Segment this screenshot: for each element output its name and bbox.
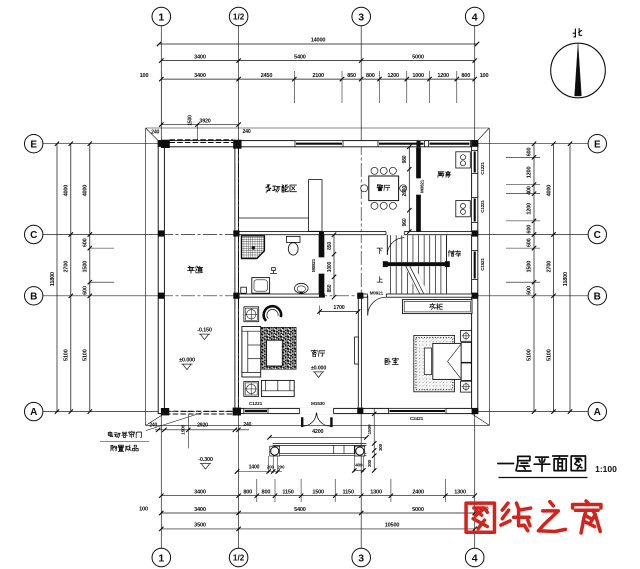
svg-text:2680: 2680 (402, 186, 408, 197)
svg-text:M0821: M0821 (311, 258, 316, 272)
svg-text:4000: 4000 (64, 185, 70, 197)
svg-text:850: 850 (327, 242, 333, 250)
svg-text:3500: 3500 (194, 523, 206, 529)
svg-text:4000: 4000 (546, 185, 552, 197)
svg-text:1500: 1500 (312, 490, 324, 496)
svg-text:3: 3 (358, 552, 364, 564)
svg-text:4: 4 (472, 552, 478, 564)
svg-text:800: 800 (366, 73, 375, 79)
svg-text:M1530: M1530 (311, 401, 325, 407)
svg-text:14000: 14000 (311, 38, 326, 44)
svg-text:200: 200 (367, 459, 372, 467)
svg-text:3400: 3400 (194, 73, 206, 79)
svg-text:1:100: 1:100 (595, 464, 617, 474)
svg-text:600: 600 (83, 238, 89, 247)
svg-text:1150: 1150 (282, 490, 293, 496)
svg-text:1500: 1500 (188, 115, 194, 126)
svg-text:4200: 4200 (312, 429, 323, 435)
svg-text:5400: 5400 (294, 507, 306, 513)
svg-text:240: 240 (242, 129, 250, 135)
svg-text:1000: 1000 (412, 73, 424, 79)
svg-text:1: 1 (158, 11, 164, 23)
svg-text:5000: 5000 (412, 54, 424, 60)
svg-text:C1221: C1221 (480, 200, 485, 213)
svg-text:240: 240 (243, 422, 251, 428)
svg-text:1400: 1400 (249, 464, 260, 470)
svg-text:1200: 1200 (527, 203, 533, 215)
svg-text:5100: 5100 (64, 349, 70, 361)
svg-text:5000: 5000 (412, 507, 424, 513)
svg-text:2920: 2920 (197, 423, 208, 429)
svg-text:600: 600 (527, 286, 533, 295)
svg-text:5100: 5100 (527, 349, 533, 361)
svg-text:C1221: C1221 (249, 401, 263, 407)
svg-text:2700: 2700 (64, 261, 70, 273)
svg-text:1150: 1150 (343, 490, 354, 496)
svg-text:1300: 1300 (370, 490, 382, 496)
svg-text:960: 960 (402, 218, 408, 226)
svg-text:1: 1 (158, 552, 164, 564)
svg-text:3400: 3400 (194, 507, 206, 513)
svg-text:-0.300: -0.300 (198, 457, 213, 463)
svg-text:5400: 5400 (294, 54, 306, 60)
svg-text:1200: 1200 (437, 73, 449, 79)
svg-text:1500: 1500 (367, 424, 373, 434)
svg-text:3400: 3400 (194, 54, 206, 60)
svg-text:A: A (594, 407, 601, 418)
svg-text:C: C (594, 230, 601, 241)
svg-text:B: B (30, 291, 37, 302)
svg-text:4: 4 (472, 11, 478, 23)
svg-text:980: 980 (402, 155, 408, 163)
svg-text:11800: 11800 (50, 272, 56, 286)
svg-text:2450: 2450 (261, 73, 273, 79)
svg-text:E: E (30, 139, 37, 150)
svg-text:200: 200 (277, 464, 285, 469)
svg-text:240: 240 (151, 130, 159, 136)
svg-text:600: 600 (527, 225, 533, 234)
svg-text:850: 850 (347, 73, 356, 79)
svg-text:1200: 1200 (527, 167, 533, 179)
svg-text:B: B (594, 291, 601, 302)
svg-text:2100: 2100 (312, 73, 324, 79)
svg-text:1700: 1700 (333, 305, 344, 311)
svg-text:M0921: M0921 (370, 291, 384, 296)
svg-text:11800: 11800 (563, 272, 569, 286)
svg-text:1000: 1000 (327, 261, 333, 272)
svg-text:C: C (30, 230, 37, 241)
svg-text:800: 800 (461, 73, 470, 79)
svg-text:1/2: 1/2 (233, 12, 245, 21)
svg-text:C1521: C1521 (480, 258, 485, 271)
svg-text:1300: 1300 (454, 490, 466, 496)
svg-text:100: 100 (140, 73, 149, 79)
svg-text:10500: 10500 (385, 523, 400, 529)
svg-text:400: 400 (355, 462, 363, 468)
svg-text:240: 240 (149, 423, 157, 429)
svg-text:300: 300 (378, 443, 383, 451)
svg-text:800: 800 (262, 490, 271, 496)
svg-text:1500: 1500 (181, 424, 187, 434)
svg-text:C1221: C1221 (480, 162, 485, 175)
svg-text:E: E (594, 139, 601, 150)
svg-text:1500: 1500 (527, 261, 533, 273)
svg-text:850: 850 (327, 284, 333, 292)
svg-text:2400: 2400 (412, 490, 424, 496)
svg-text:5100: 5100 (546, 349, 552, 361)
svg-text:800: 800 (243, 490, 252, 496)
svg-text:5100: 5100 (83, 349, 89, 361)
svg-text:1/2: 1/2 (233, 553, 245, 562)
svg-text:M0821: M0821 (419, 179, 424, 193)
svg-text:3400: 3400 (194, 490, 206, 496)
svg-text:1200: 1200 (387, 73, 399, 79)
svg-text:-0.150: -0.150 (197, 328, 212, 334)
svg-text:C2421: C2421 (410, 416, 424, 422)
svg-text:±0.000: ±0.000 (311, 365, 326, 371)
svg-text:600: 600 (83, 286, 89, 295)
svg-text:3920: 3920 (199, 118, 210, 124)
svg-text:±0.000: ±0.000 (179, 358, 195, 364)
svg-text:100: 100 (139, 507, 148, 513)
svg-text:3: 3 (358, 11, 364, 23)
svg-text:600: 600 (527, 238, 533, 247)
svg-text:4000: 4000 (83, 185, 89, 197)
svg-text:2700: 2700 (546, 261, 552, 273)
svg-text:600: 600 (527, 148, 533, 157)
svg-text:100: 100 (480, 73, 489, 79)
svg-text:1500: 1500 (83, 261, 89, 273)
svg-text:A: A (30, 407, 37, 418)
